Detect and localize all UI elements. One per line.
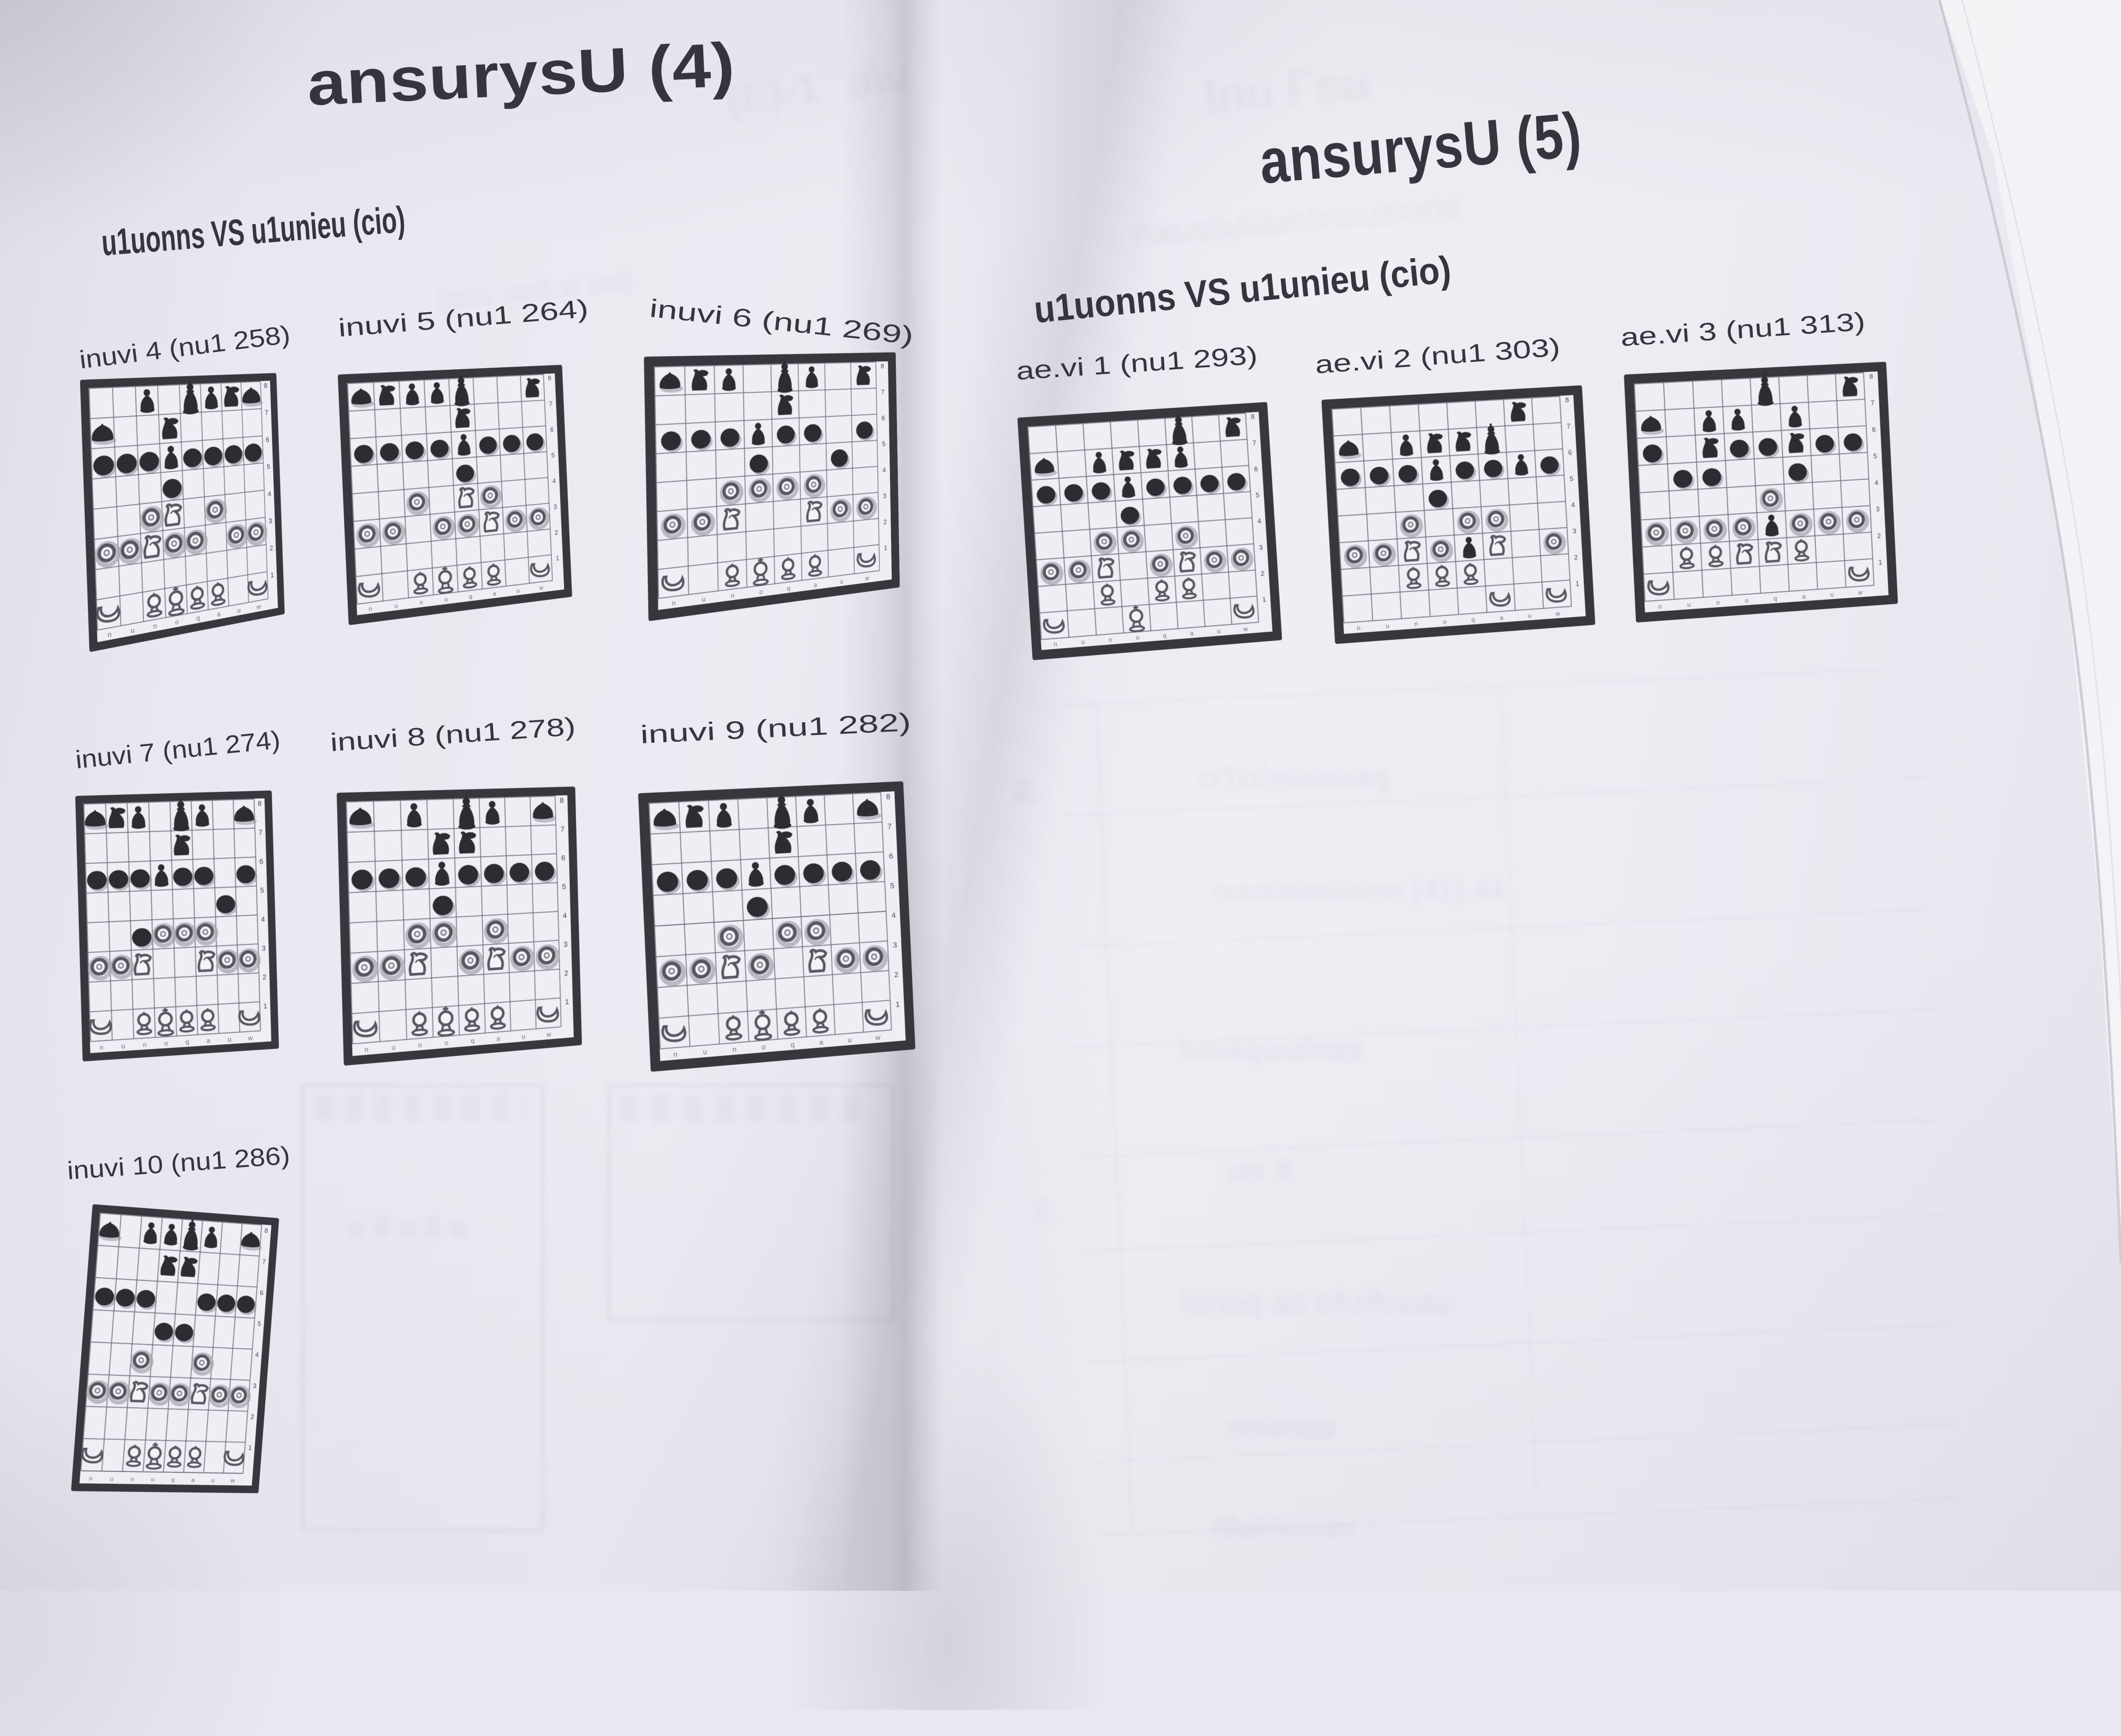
svg-text:8: 8	[258, 799, 262, 808]
svg-text:7: 7	[1871, 399, 1875, 407]
svg-text:3: 3	[563, 940, 568, 949]
svg-text:6: 6	[266, 436, 269, 444]
svg-text:u: u	[847, 1036, 852, 1044]
svg-text:q: q	[469, 593, 472, 600]
svg-text:u: u	[1528, 612, 1531, 619]
svg-text:o: o	[759, 588, 763, 596]
svg-text:a: a	[1500, 614, 1504, 621]
svg-text:n: n	[1108, 636, 1112, 643]
svg-text:u: u	[237, 606, 241, 614]
svg-text:4: 4	[261, 915, 265, 923]
svg-text:q: q	[1163, 632, 1167, 639]
svg-text:2: 2	[1877, 532, 1881, 540]
svg-text:a: a	[1190, 630, 1194, 637]
svg-text:2: 2	[269, 544, 273, 552]
svg-text:n: n	[365, 1045, 369, 1054]
svg-text:a: a	[207, 1036, 211, 1044]
svg-text:2: 2	[250, 1413, 255, 1421]
svg-text:4: 4	[1257, 517, 1261, 525]
svg-text:7: 7	[1567, 422, 1571, 430]
svg-text:2: 2	[564, 969, 568, 978]
svg-text:u: u	[1830, 591, 1834, 598]
svg-text:1: 1	[555, 554, 559, 562]
svg-text:o: o	[1136, 634, 1140, 641]
svg-text:4: 4	[268, 490, 271, 498]
svg-text:5: 5	[260, 886, 264, 894]
svg-text:7: 7	[258, 828, 262, 836]
svg-text:u: u	[228, 1035, 231, 1043]
svg-text:4: 4	[563, 911, 567, 920]
svg-text:7: 7	[265, 409, 268, 417]
svg-text:u: u	[522, 1033, 526, 1041]
svg-text:8: 8	[1869, 372, 1873, 380]
svg-text:3: 3	[261, 944, 266, 952]
svg-text:n: n	[99, 1043, 104, 1051]
svg-text:o: o	[175, 618, 179, 627]
svg-text:4: 4	[1874, 479, 1878, 487]
svg-text:q: q	[171, 1476, 175, 1483]
svg-text:w: w	[1555, 610, 1560, 617]
svg-text:5: 5	[562, 883, 566, 892]
svg-text:q: q	[1471, 616, 1475, 623]
svg-text:6: 6	[561, 854, 565, 862]
svg-text:n: n	[418, 1041, 422, 1049]
svg-text:7: 7	[549, 400, 553, 407]
svg-text:8: 8	[886, 793, 890, 802]
svg-text:u: u	[840, 578, 843, 586]
svg-text:2: 2	[1574, 553, 1578, 561]
svg-text:u: u	[110, 1475, 114, 1482]
svg-text:q: q	[185, 1038, 189, 1046]
svg-text:8: 8	[560, 796, 564, 805]
svg-text:a: a	[493, 590, 497, 597]
svg-text:w: w	[256, 602, 261, 611]
svg-text:n: n	[153, 621, 157, 630]
svg-text:7: 7	[560, 825, 564, 833]
svg-text:6: 6	[888, 852, 893, 861]
svg-text:o: o	[445, 596, 448, 603]
svg-text:1: 1	[1575, 580, 1580, 588]
svg-text:n: n	[1716, 599, 1720, 606]
svg-text:8: 8	[548, 375, 551, 382]
svg-text:o: o	[164, 1039, 168, 1047]
svg-text:n: n	[731, 591, 734, 599]
svg-text:1: 1	[270, 571, 274, 579]
svg-text:7: 7	[881, 388, 885, 396]
svg-text:8: 8	[1565, 396, 1569, 404]
svg-text:4: 4	[552, 477, 556, 485]
svg-text:3: 3	[1876, 505, 1880, 513]
svg-text:1: 1	[263, 1002, 267, 1010]
svg-text:7: 7	[1253, 439, 1257, 447]
svg-text:1: 1	[884, 544, 887, 552]
svg-text:n: n	[107, 630, 112, 639]
svg-text:w: w	[1243, 625, 1248, 633]
svg-text:4: 4	[1571, 501, 1575, 509]
svg-text:n: n	[732, 1045, 736, 1054]
svg-text:n: n	[1357, 624, 1360, 632]
svg-text:2: 2	[1260, 569, 1265, 577]
svg-text:5: 5	[1570, 475, 1574, 482]
svg-text:w: w	[546, 1031, 551, 1038]
svg-text:u: u	[211, 1477, 215, 1484]
svg-text:5: 5	[890, 882, 894, 891]
svg-text:n: n	[143, 1041, 147, 1048]
svg-text:o: o	[762, 1043, 766, 1051]
svg-text:u: u	[121, 1042, 125, 1049]
svg-text:3: 3	[1572, 527, 1577, 535]
svg-text:n: n	[369, 605, 372, 613]
svg-text:u: u	[1217, 628, 1220, 635]
svg-text:5: 5	[1256, 491, 1260, 499]
svg-text:u: u	[391, 1043, 395, 1051]
svg-text:q: q	[196, 613, 200, 622]
svg-text:3: 3	[553, 503, 557, 511]
svg-text:4: 4	[255, 1351, 259, 1359]
svg-text:u: u	[517, 587, 520, 594]
svg-text:8: 8	[264, 381, 267, 389]
svg-text:3: 3	[1259, 543, 1263, 551]
svg-text:4: 4	[892, 911, 896, 920]
svg-text:u: u	[702, 595, 705, 603]
svg-text:2: 2	[262, 973, 267, 981]
svg-text:w: w	[247, 1034, 253, 1042]
svg-text:6: 6	[550, 426, 554, 433]
svg-text:q: q	[790, 1040, 794, 1048]
svg-text:3: 3	[883, 492, 886, 500]
svg-text:6: 6	[1872, 426, 1876, 433]
svg-text:a: a	[819, 1038, 823, 1046]
svg-text:5: 5	[1873, 452, 1877, 460]
svg-text:q: q	[787, 584, 791, 592]
svg-text:w: w	[230, 1477, 235, 1484]
svg-text:6: 6	[882, 414, 885, 422]
svg-text:n: n	[1414, 620, 1418, 628]
svg-text:1: 1	[895, 1000, 900, 1009]
svg-text:o: o	[445, 1039, 448, 1047]
svg-text:2: 2	[894, 971, 898, 980]
svg-text:1: 1	[248, 1444, 252, 1452]
svg-text:5: 5	[267, 463, 270, 471]
svg-text:q: q	[1773, 595, 1777, 602]
svg-text:6: 6	[259, 857, 264, 865]
svg-text:w: w	[1857, 589, 1863, 596]
svg-text:n: n	[89, 1475, 93, 1482]
svg-text:3: 3	[893, 941, 897, 950]
svg-text:8: 8	[264, 1227, 268, 1235]
svg-text:w: w	[539, 584, 543, 591]
svg-text:8: 8	[1250, 412, 1255, 420]
svg-text:1: 1	[565, 998, 569, 1007]
svg-text:4: 4	[883, 466, 886, 474]
svg-text:3: 3	[268, 517, 272, 526]
svg-text:u: u	[395, 602, 398, 610]
svg-text:n: n	[419, 599, 423, 606]
svg-text:6: 6	[1254, 465, 1258, 473]
svg-text:7: 7	[262, 1258, 266, 1266]
svg-text:w: w	[875, 1033, 881, 1042]
svg-text:1: 1	[1262, 596, 1266, 603]
svg-text:w: w	[865, 574, 870, 582]
svg-text:n: n	[1658, 603, 1662, 610]
svg-text:a: a	[814, 581, 817, 589]
svg-text:a: a	[1802, 593, 1805, 600]
svg-text:5: 5	[257, 1320, 261, 1328]
svg-text:7: 7	[887, 822, 892, 831]
svg-text:2: 2	[883, 518, 887, 526]
svg-text:a: a	[497, 1035, 501, 1043]
svg-text:1: 1	[1878, 558, 1883, 566]
svg-text:u: u	[1687, 601, 1691, 608]
svg-text:5: 5	[882, 440, 886, 448]
svg-text:n: n	[673, 1050, 678, 1059]
svg-text:u: u	[1386, 622, 1389, 630]
svg-text:5: 5	[551, 451, 555, 459]
svg-text:q: q	[471, 1037, 474, 1045]
svg-text:6: 6	[260, 1289, 264, 1297]
svg-text:3: 3	[252, 1382, 257, 1390]
svg-text:a: a	[217, 610, 220, 618]
svg-text:n: n	[672, 599, 675, 607]
svg-text:n: n	[130, 1476, 135, 1483]
svg-text:n: n	[1054, 640, 1058, 648]
svg-text:2: 2	[554, 529, 558, 537]
svg-text:8: 8	[881, 362, 884, 369]
svg-text:u: u	[703, 1047, 707, 1056]
svg-text:u: u	[1081, 638, 1085, 645]
svg-text:o: o	[1443, 618, 1447, 625]
svg-text:6: 6	[1568, 448, 1572, 456]
svg-text:o: o	[1745, 597, 1749, 604]
svg-text:u: u	[130, 625, 135, 634]
